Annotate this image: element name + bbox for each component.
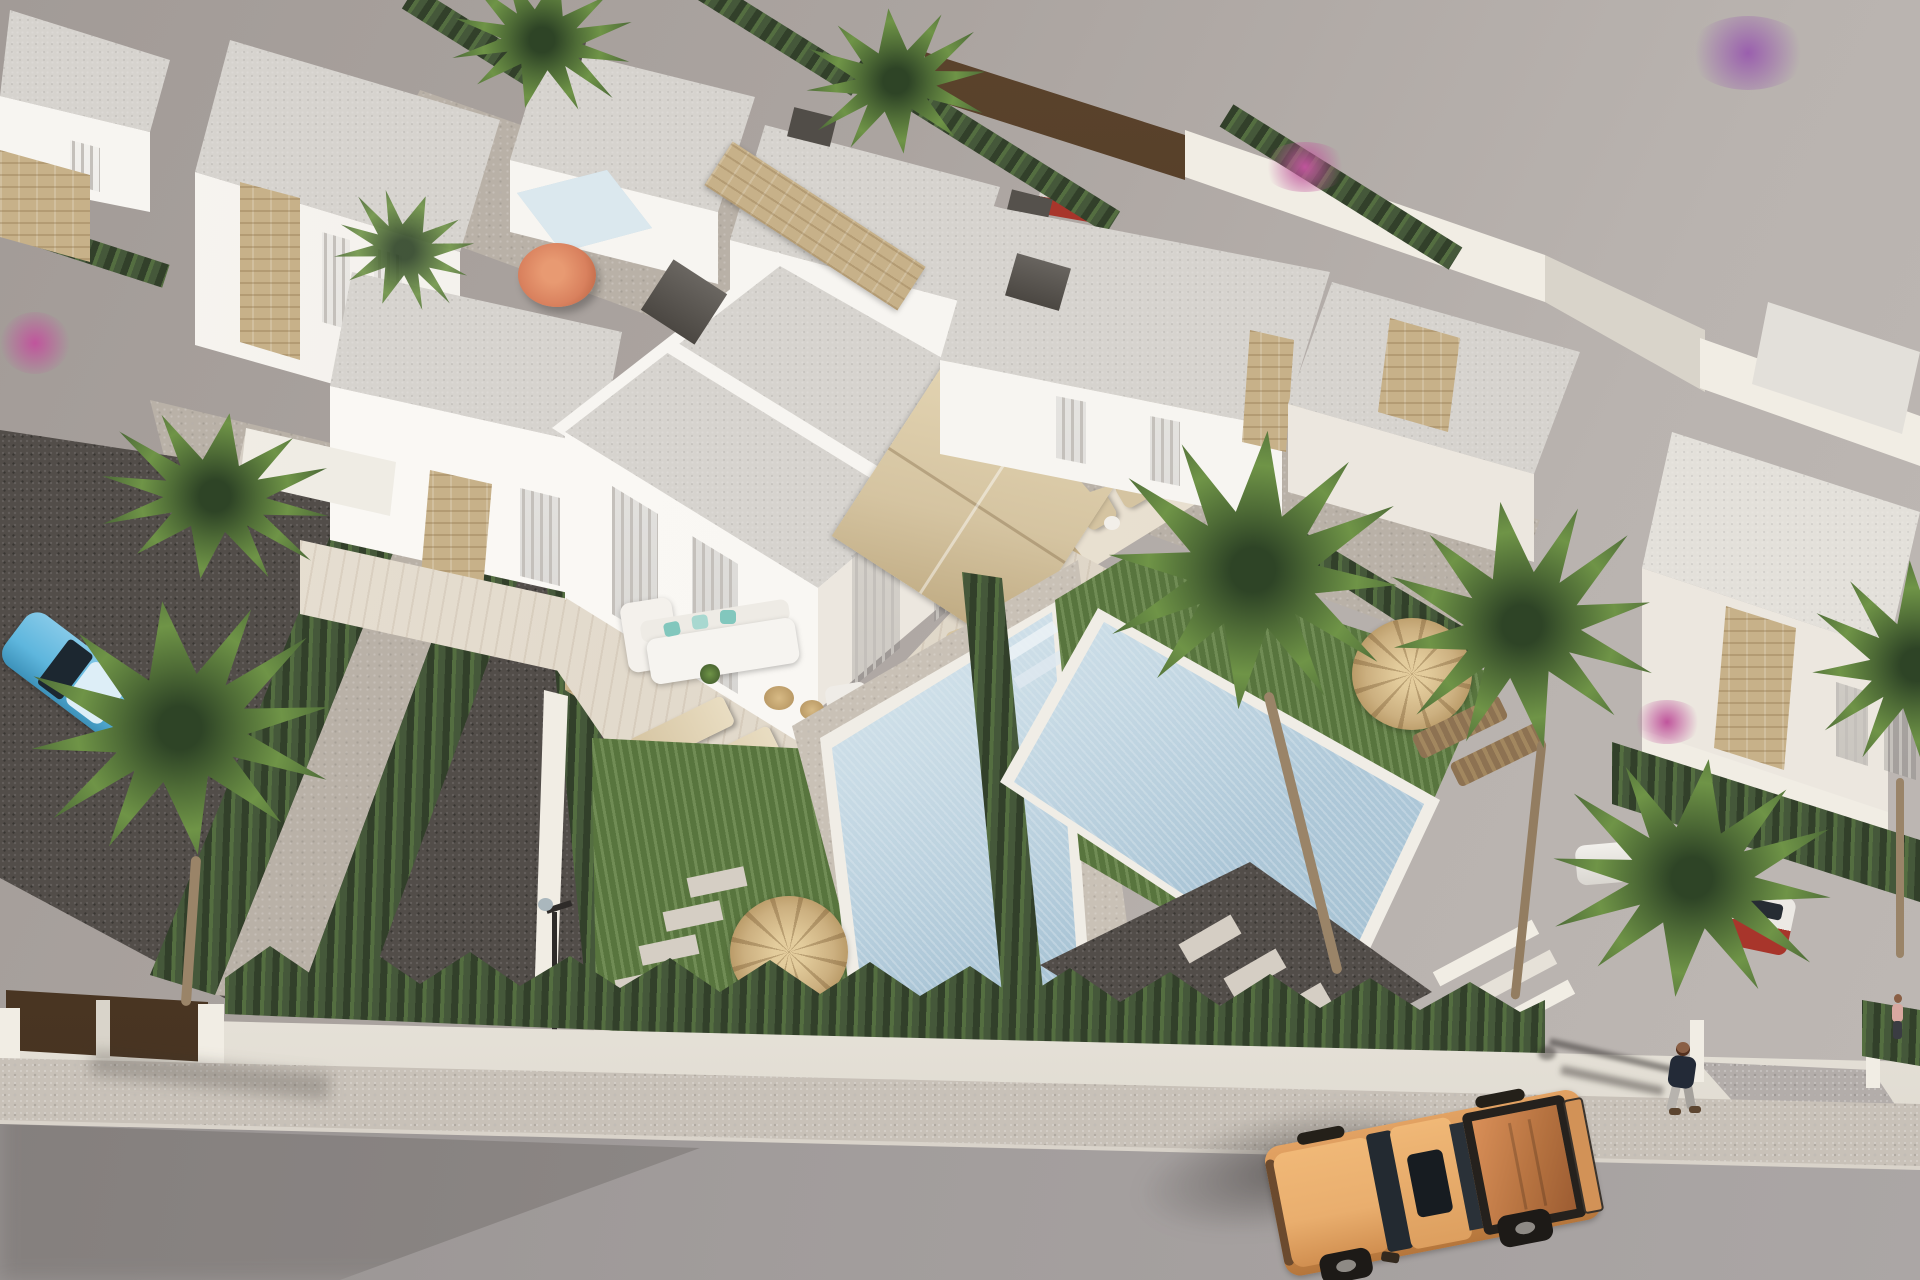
- truck-hub: [1335, 1258, 1357, 1274]
- palm-trunk: [1896, 778, 1904, 958]
- bougainvillea-pink: [1262, 142, 1348, 192]
- gate-pillar: [198, 1004, 224, 1064]
- lamp-shadow-head: [1538, 1046, 1556, 1060]
- pedestrian-shoe: [1669, 1108, 1681, 1115]
- truck-mirror: [1381, 1251, 1400, 1264]
- rattan-pouf: [764, 686, 794, 710]
- truck-hub: [1514, 1220, 1536, 1236]
- sofa-pillow-teal: [720, 610, 736, 624]
- distant-person-torso: [1892, 1004, 1903, 1022]
- pedestrian-shoe: [1689, 1106, 1701, 1113]
- balcony-table: [1104, 516, 1120, 530]
- bougainvillea-purple: [1688, 16, 1808, 90]
- bougainvillea-pink: [0, 312, 70, 374]
- potted-plant: [700, 664, 720, 684]
- distant-person-legs: [1893, 1021, 1902, 1039]
- aerial-render-scene: [0, 0, 1920, 1280]
- lamp-head: [538, 898, 553, 911]
- sofa-pillow-teal: [691, 614, 709, 630]
- bougainvillea-pink: [1632, 700, 1702, 744]
- orange-parasol: [518, 243, 596, 307]
- pedestrian-head: [1676, 1042, 1690, 1056]
- distant-person: [1888, 994, 1906, 1042]
- pedestrian-torso: [1667, 1054, 1697, 1089]
- pedestrian: [1645, 1038, 1715, 1120]
- distant-person-head: [1894, 994, 1902, 1003]
- gate-pillar: [0, 1008, 20, 1066]
